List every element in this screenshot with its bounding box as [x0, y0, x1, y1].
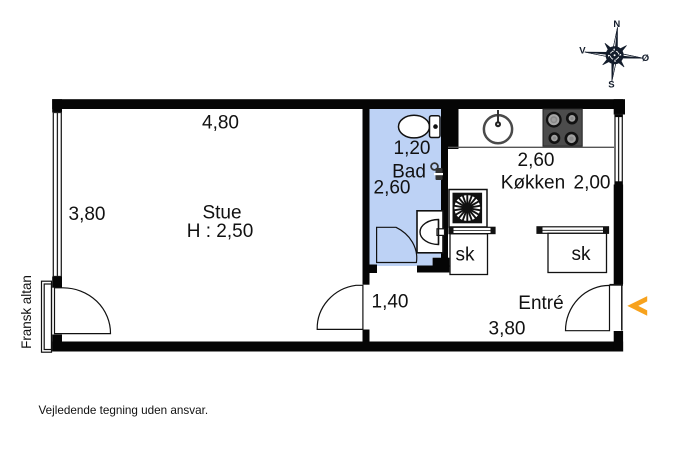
svg-text:H : 2,50: H : 2,50 — [187, 221, 254, 242]
svg-text:sk: sk — [572, 244, 592, 265]
svg-text:Vejledende tegning uden ansvar: Vejledende tegning uden ansvar. — [39, 404, 209, 417]
svg-text:sk: sk — [456, 245, 476, 266]
svg-text:Ø: Ø — [642, 53, 649, 64]
svg-text:1,40: 1,40 — [372, 292, 409, 313]
svg-text:2,00: 2,00 — [574, 173, 611, 194]
svg-text:3,80: 3,80 — [69, 204, 106, 225]
svg-text:V: V — [579, 46, 586, 57]
svg-text:Entré: Entré — [518, 293, 563, 314]
svg-text:2,60: 2,60 — [374, 178, 411, 199]
svg-text:N: N — [613, 19, 620, 30]
svg-text:S: S — [608, 79, 614, 90]
svg-text:Køkken: Køkken — [501, 173, 565, 194]
svg-text:3,80: 3,80 — [489, 319, 526, 340]
svg-text:1,20: 1,20 — [394, 138, 431, 159]
svg-text:2,60: 2,60 — [518, 150, 555, 171]
svg-text:4,80: 4,80 — [202, 113, 239, 134]
svg-text:Fransk altan: Fransk altan — [19, 275, 34, 349]
